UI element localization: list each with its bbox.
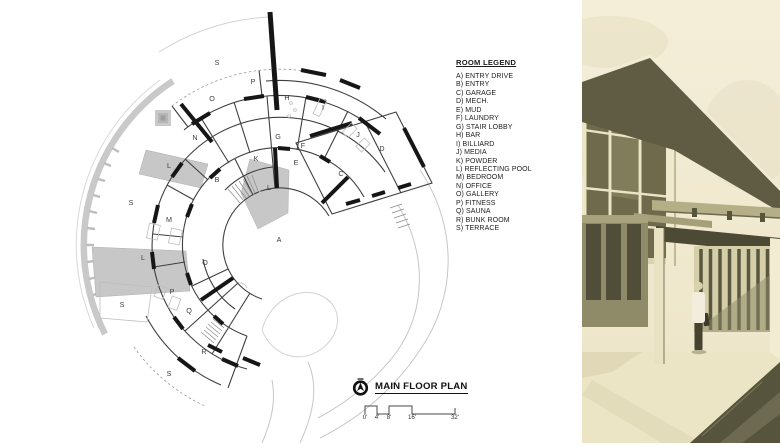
presentation-sheet: SPOHIJNGFDKELCBLSMALOPSQRS ROOM LEGEND A… xyxy=(0,0,780,443)
legend-item: M) BEDROOM xyxy=(456,174,578,182)
legend-item: C) GARAGE xyxy=(456,90,578,98)
scale-label-4: 4' xyxy=(375,414,380,421)
legend-item: A) ENTRY DRIVE xyxy=(456,73,578,81)
legend-item: R) BUNK ROOM xyxy=(456,217,578,225)
room-label: E xyxy=(294,158,299,167)
room-label: A xyxy=(277,235,282,244)
room-label: R xyxy=(201,347,206,356)
stair-hatching xyxy=(201,175,410,343)
room-label: S xyxy=(167,369,172,378)
scale-bar: 0' 4' 8' 16' 32' xyxy=(358,399,462,425)
building-walls xyxy=(100,69,432,406)
legend-item: B) ENTRY xyxy=(456,81,578,89)
room-label: K xyxy=(254,154,259,163)
room-label: L xyxy=(167,161,171,170)
room-label: S xyxy=(215,58,220,67)
room-label: H xyxy=(284,93,289,102)
scale-bar-icon xyxy=(358,399,462,425)
scale-label-8: 8' xyxy=(387,414,392,421)
room-label: I xyxy=(322,103,324,112)
room-label: S xyxy=(129,198,134,207)
room-label: M xyxy=(166,215,172,224)
walkway-post xyxy=(654,228,664,364)
scale-label-16: 16' xyxy=(408,414,416,421)
title-block: MAIN FLOOR PLAN xyxy=(351,378,468,397)
exterior-rendering-svg xyxy=(582,0,780,443)
room-label: Q xyxy=(186,306,192,315)
room-label: O xyxy=(202,258,208,267)
legend-item: P) FITNESS xyxy=(456,200,578,208)
room-label: J xyxy=(356,130,360,139)
room-label: P xyxy=(170,287,175,296)
legend-item: F) LAUNDRY xyxy=(456,115,578,123)
room-label: P xyxy=(251,77,256,86)
legend-item: K) POWDER xyxy=(456,158,578,166)
scale-label-32: 32' xyxy=(451,414,459,421)
room-label: G xyxy=(275,132,281,141)
legend-item: S) TERRACE xyxy=(456,225,578,233)
legend-item: Q) SAUNA xyxy=(456,208,578,216)
reflecting-pools xyxy=(92,150,289,297)
legend-item: I) BILLIARD xyxy=(456,141,578,149)
legend-item: N) OFFICE xyxy=(456,183,578,191)
firepit-feature xyxy=(155,110,171,126)
room-legend: ROOM LEGEND A) ENTRY DRIVEB) ENTRYC) GAR… xyxy=(456,58,578,234)
legend-item: H) BAR xyxy=(456,132,578,140)
legend-item: E) MUD xyxy=(456,107,578,115)
exterior-rendering xyxy=(582,0,780,443)
room-label: N xyxy=(192,133,197,142)
room-label: S xyxy=(120,300,125,309)
room-label: D xyxy=(379,144,384,153)
room-label: O xyxy=(209,94,215,103)
legend-item: J) MEDIA xyxy=(456,149,578,157)
room-label: F xyxy=(301,141,305,150)
room-label: B xyxy=(215,175,220,184)
north-arrow-icon xyxy=(351,378,370,397)
legend-item: G) STAIR LOBBY xyxy=(456,124,578,132)
left-bays xyxy=(582,215,648,327)
legend-item: L) REFLECTING POOL xyxy=(456,166,578,174)
room-label: C xyxy=(338,169,343,178)
legend-item: O) GALLERY xyxy=(456,191,578,199)
legend-item: D) MECH. xyxy=(456,98,578,106)
scale-label-0: 0' xyxy=(363,414,368,421)
room-label: L xyxy=(267,183,271,192)
room-legend-list: A) ENTRY DRIVEB) ENTRYC) GARAGED) MECH.E… xyxy=(456,73,578,234)
room-label: L xyxy=(141,253,145,262)
main-floor-plan-title: MAIN FLOOR PLAN xyxy=(375,381,468,394)
room-legend-title: ROOM LEGEND xyxy=(456,58,578,67)
